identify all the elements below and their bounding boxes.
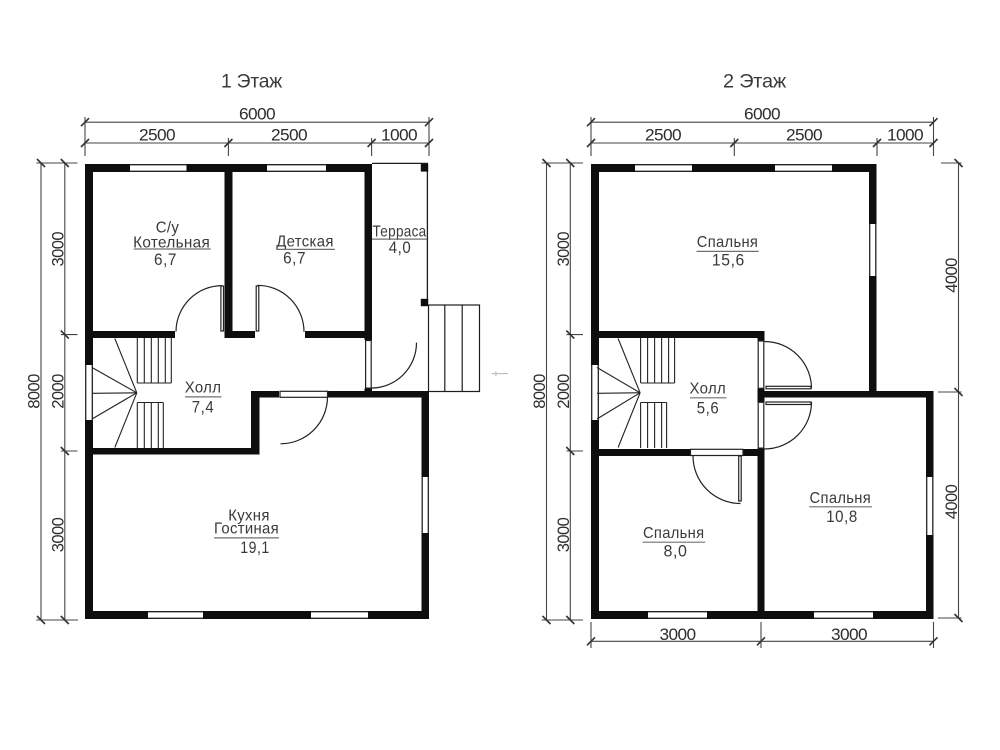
svg-text:Холл: Холл bbox=[185, 380, 222, 397]
svg-text:5,6: 5,6 bbox=[697, 400, 720, 418]
svg-text:2000: 2000 bbox=[554, 374, 573, 409]
svg-text:1 Этаж: 1 Этаж bbox=[221, 71, 282, 93]
svg-text:10,8: 10,8 bbox=[826, 508, 858, 526]
svg-text:4000: 4000 bbox=[942, 258, 961, 293]
svg-text:3000: 3000 bbox=[554, 232, 573, 267]
svg-text:2 Этаж: 2 Этаж bbox=[723, 71, 786, 93]
svg-text:Гостиная: Гостиная bbox=[214, 521, 279, 538]
svg-text:7,4: 7,4 bbox=[192, 399, 215, 417]
svg-text:Спальня: Спальня bbox=[643, 525, 705, 542]
svg-text:Спальня: Спальня bbox=[697, 234, 759, 251]
svg-text:6,7: 6,7 bbox=[283, 250, 306, 268]
svg-text:15,6: 15,6 bbox=[712, 252, 745, 270]
svg-text:Холл: Холл bbox=[690, 381, 727, 398]
svg-text:2500: 2500 bbox=[139, 125, 175, 144]
svg-text:6000: 6000 bbox=[239, 105, 275, 124]
svg-text:3000: 3000 bbox=[48, 232, 67, 267]
svg-text:4,0: 4,0 bbox=[389, 239, 412, 257]
svg-text:19,1: 19,1 bbox=[240, 539, 270, 557]
svg-text:2500: 2500 bbox=[271, 125, 307, 144]
svg-text:1000: 1000 bbox=[887, 125, 923, 144]
svg-text:2000: 2000 bbox=[48, 374, 67, 409]
svg-text:2500: 2500 bbox=[786, 125, 822, 144]
svg-text:3000: 3000 bbox=[554, 518, 573, 553]
svg-text:4000: 4000 bbox=[942, 485, 961, 520]
svg-text:6000: 6000 bbox=[744, 105, 780, 124]
svg-text:1000: 1000 bbox=[381, 125, 417, 144]
svg-text:8000: 8000 bbox=[24, 374, 43, 409]
svg-text:3000: 3000 bbox=[831, 625, 867, 644]
svg-text:Спальня: Спальня bbox=[810, 490, 872, 507]
svg-text:8000: 8000 bbox=[530, 374, 549, 409]
svg-text:8,0: 8,0 bbox=[664, 542, 688, 560]
svg-text:2500: 2500 bbox=[645, 125, 681, 144]
svg-text:3000: 3000 bbox=[48, 518, 67, 553]
svg-text:Детская: Детская bbox=[276, 234, 334, 251]
svg-text:6,7: 6,7 bbox=[154, 251, 177, 269]
svg-text:3000: 3000 bbox=[660, 625, 696, 644]
